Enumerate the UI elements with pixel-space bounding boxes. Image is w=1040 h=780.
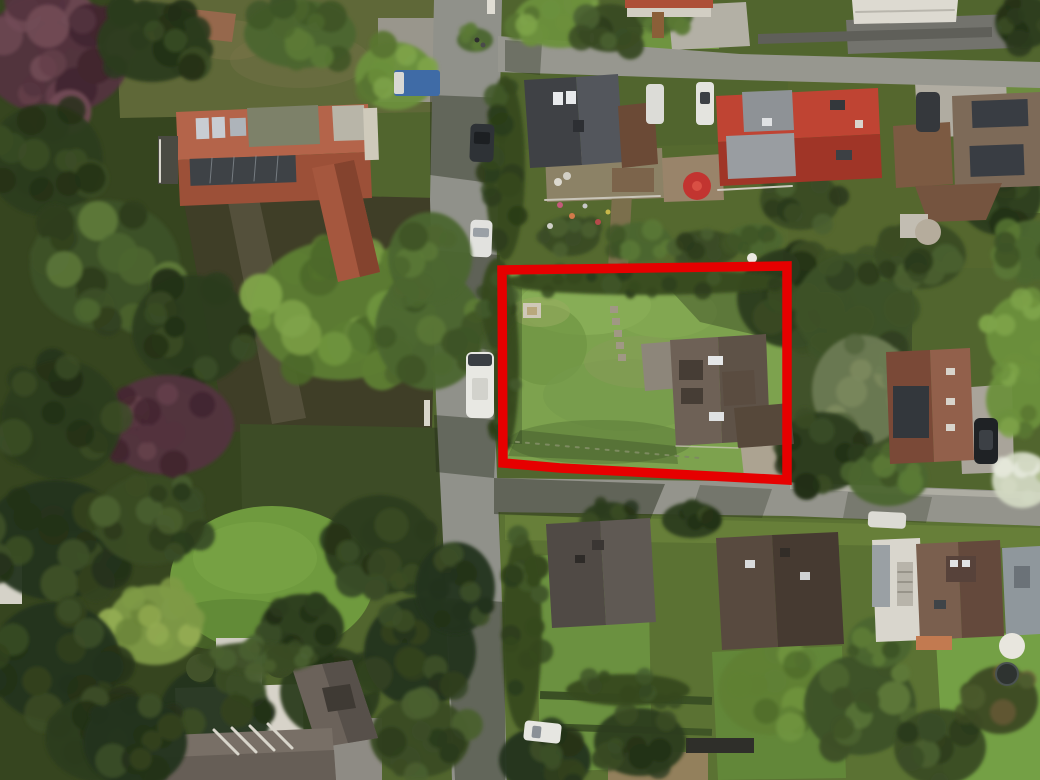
skylight	[708, 356, 723, 365]
chimney	[946, 368, 955, 375]
tree-shadow-road	[505, 40, 542, 75]
pergola	[612, 168, 654, 192]
car-white	[523, 720, 562, 744]
umbrella-red-top	[692, 181, 702, 191]
tree-cluster	[991, 218, 1040, 285]
camper-roof-vent	[472, 378, 488, 400]
skylight	[830, 100, 845, 110]
chimney	[855, 120, 863, 128]
flower-bed	[547, 223, 553, 229]
house-roof	[600, 518, 656, 625]
skylight	[962, 560, 970, 567]
roof-vent	[573, 120, 584, 132]
white-post	[424, 400, 430, 426]
truck-cab	[394, 72, 404, 94]
chimney	[592, 540, 604, 550]
skylight	[575, 555, 585, 563]
pergola-row	[686, 738, 754, 753]
skylight	[745, 560, 755, 568]
tree-cluster-foreground	[83, 694, 187, 780]
skylight	[950, 560, 958, 567]
solar-panels	[190, 155, 297, 186]
house-roof-redtile	[716, 88, 880, 142]
white-ball	[747, 253, 757, 263]
dormer	[322, 684, 356, 712]
gate-post	[487, 0, 495, 14]
house-wall	[363, 108, 379, 160]
house-roof	[958, 540, 1004, 638]
stepping-stone	[618, 354, 626, 361]
flat-roof-light	[332, 105, 366, 141]
umbrella-white	[999, 633, 1025, 659]
skylight	[709, 412, 724, 421]
skylight	[230, 118, 247, 137]
stepping-stone	[616, 342, 624, 349]
skylight	[836, 150, 852, 160]
flower-bed	[606, 210, 611, 215]
flower-bed	[557, 202, 563, 208]
skylight	[196, 118, 210, 139]
car-sunroof	[700, 92, 710, 104]
chimney	[946, 398, 955, 405]
skylight	[1014, 566, 1030, 588]
stepping-stone	[610, 306, 618, 313]
car-dark	[916, 92, 940, 132]
car-windshield	[473, 228, 489, 238]
stairs	[897, 562, 913, 606]
solar-panels	[972, 99, 1029, 128]
scene-layers	[0, 0, 1040, 780]
tree-cluster	[97, 0, 213, 82]
car-white	[469, 220, 492, 258]
house-roof-edge	[625, 0, 713, 8]
house-wall-white	[627, 8, 711, 17]
dormer	[946, 556, 976, 582]
skylight	[212, 117, 226, 138]
flower-bed	[583, 204, 588, 209]
skylight	[934, 600, 946, 609]
aerial-photo: Vertical aerial photograph of a suburban…	[0, 0, 1040, 780]
house-roof-metal	[1002, 546, 1040, 636]
stone-feature	[915, 219, 941, 245]
car-windshield	[531, 726, 541, 739]
flower-bed	[595, 219, 601, 225]
tree-shadow-road	[494, 478, 665, 520]
skylight	[800, 572, 810, 580]
dormer	[681, 388, 703, 404]
stepping-stone	[614, 330, 622, 337]
skylight	[553, 92, 563, 105]
parked-car-white	[868, 511, 907, 529]
house-wing-roof	[722, 370, 756, 406]
chimney	[780, 548, 790, 557]
aerial-photo-figure: Vertical aerial photograph of a suburban…	[0, 0, 1040, 780]
flower-bed	[569, 213, 575, 219]
car-window	[474, 132, 490, 145]
dormer	[679, 360, 703, 380]
solar-panels	[893, 386, 929, 438]
sandbox-inner	[527, 307, 537, 315]
skylight	[566, 91, 576, 104]
pedestrian	[475, 38, 480, 43]
roof-strip-gray	[872, 545, 890, 607]
chimney	[946, 424, 955, 431]
stepping-stone	[612, 318, 620, 325]
camper-windshield	[468, 354, 492, 366]
roof-metal-gray	[726, 133, 796, 179]
solar-panels	[969, 144, 1024, 177]
wood-stack	[652, 12, 664, 38]
house-roof	[716, 535, 778, 650]
patio-furniture	[563, 172, 571, 180]
tree-cluster	[415, 542, 495, 634]
tree-shadow-road	[434, 415, 497, 478]
patio-terracotta	[916, 636, 952, 650]
skylight	[762, 118, 772, 126]
patio-furniture	[554, 178, 562, 186]
pedestrian	[481, 43, 486, 48]
van-white	[646, 84, 664, 124]
house-roof	[576, 74, 624, 165]
house-roof	[546, 521, 606, 628]
car-roof-gloss	[979, 430, 993, 450]
flat-roof-green	[247, 105, 320, 147]
